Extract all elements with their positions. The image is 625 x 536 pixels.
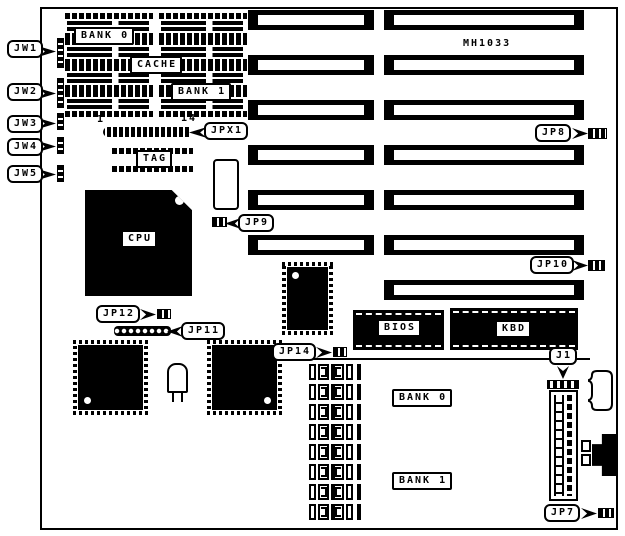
cache-bank0-label: BANK 0 — [74, 27, 134, 45]
simm-endbar — [357, 364, 361, 380]
simm-endcap — [346, 404, 353, 420]
j1-header — [547, 380, 579, 389]
expansion-slot — [384, 55, 584, 75]
jp12-jumper — [157, 309, 171, 319]
dip-chip — [157, 13, 247, 39]
jp10-jumper — [588, 260, 605, 271]
simm-latch-icon — [333, 364, 344, 380]
board-model-text: MH1033 — [463, 39, 511, 49]
expansion-slot — [248, 55, 374, 75]
simm-endcap — [346, 364, 353, 380]
jpx1-callout: JPX1 — [204, 122, 248, 140]
simm-endcap — [309, 444, 316, 460]
simm-endbar — [357, 384, 361, 400]
expansion-slot — [384, 100, 584, 120]
expansion-slot — [384, 145, 584, 165]
qfp-chip-small — [282, 262, 333, 335]
simm-latch-icon — [333, 444, 344, 460]
qfp-chip-left — [73, 340, 148, 415]
cache-bank1-label: BANK 1 — [171, 83, 231, 101]
pin1-dot-icon — [84, 397, 91, 404]
din-connector-outline — [585, 368, 616, 414]
simm-endcap — [309, 364, 316, 380]
simm-latch-icon — [318, 484, 329, 500]
jw3-callout: JW3 — [7, 115, 43, 133]
jw2-jumper — [57, 78, 64, 108]
simm-endcap — [346, 424, 353, 440]
simm-latch-icon — [318, 364, 329, 380]
kbd-label: KBD — [495, 320, 531, 338]
expansion-slot — [384, 190, 584, 210]
connector-pin-block — [581, 454, 591, 466]
expansion-slot — [384, 280, 584, 300]
simm-socket-stack — [309, 364, 361, 520]
jp12-callout: JP12 — [96, 305, 140, 323]
jw4-callout: JW4 — [7, 138, 43, 156]
jw3-jumper — [57, 113, 64, 130]
simm-endbar — [357, 484, 361, 500]
simm-socket — [309, 484, 361, 500]
oscillator — [213, 159, 239, 210]
qfp-chip-right — [207, 340, 282, 415]
connector-pin-block — [581, 440, 591, 452]
jpx1-header — [103, 127, 191, 137]
expansion-slot — [384, 235, 584, 255]
power-connector — [549, 390, 578, 501]
simm-socket — [309, 424, 361, 440]
bios-label: BIOS — [377, 319, 421, 337]
power-connector-stripe — [567, 395, 572, 496]
expansion-slot — [248, 190, 374, 210]
simm-latch-icon — [318, 424, 329, 440]
cpu-label: CPU — [121, 230, 157, 248]
jp11-callout: JP11 — [181, 322, 225, 340]
expansion-slot — [248, 10, 374, 30]
simm-endbar — [357, 504, 361, 520]
dip-chip — [63, 91, 153, 117]
simm-endcap — [309, 464, 316, 480]
simm-endcap — [309, 384, 316, 400]
simm-bank0-label: BANK 0 — [392, 389, 452, 407]
jp9-jumper — [212, 217, 227, 227]
power-connector-pins — [554, 395, 564, 496]
simm-socket — [309, 504, 361, 520]
simm-latch-icon — [333, 404, 344, 420]
simm-endcap — [309, 424, 316, 440]
jpx1-pin14-text: 14 — [181, 114, 197, 124]
jw5-callout: JW5 — [7, 165, 43, 183]
simm-socket — [309, 464, 361, 480]
simm-endbar — [357, 424, 361, 440]
simm-bank1-label: BANK 1 — [392, 472, 452, 490]
jw2-callout: JW2 — [7, 83, 43, 101]
pin1-dot-icon — [292, 272, 299, 279]
expansion-slot — [248, 100, 374, 120]
simm-latch-icon — [318, 404, 329, 420]
jp8-callout: JP8 — [535, 124, 571, 142]
simm-endcap — [346, 484, 353, 500]
jp11-header — [114, 326, 171, 336]
simm-endcap — [346, 464, 353, 480]
cache-label: CACHE — [130, 56, 182, 74]
jw5-jumper — [57, 165, 64, 182]
expansion-slot — [384, 10, 584, 30]
motherboard-diagram: MH1033 BANK 0 CACHE BANK 1 JW1 JW2 JW3 J… — [0, 0, 625, 536]
expansion-slot — [248, 235, 374, 255]
simm-endcap — [309, 484, 316, 500]
jp10-callout: JP10 — [530, 256, 574, 274]
simm-endcap — [309, 504, 316, 520]
jp7-callout: JP7 — [544, 504, 580, 522]
simm-endbar — [357, 404, 361, 420]
crystal — [167, 363, 188, 393]
simm-endbar — [357, 444, 361, 460]
jp14-callout: JP14 — [272, 343, 316, 361]
simm-latch-icon — [333, 424, 344, 440]
simm-endcap — [346, 504, 353, 520]
jp14-jumper — [333, 347, 347, 357]
jp9-callout: JP9 — [238, 214, 274, 232]
simm-socket — [309, 404, 361, 420]
j1-callout: J1 — [549, 347, 577, 365]
simm-endcap — [309, 404, 316, 420]
jp8-jumper — [588, 128, 607, 139]
jw1-jumper — [57, 38, 64, 68]
simm-latch-icon — [318, 444, 329, 460]
simm-latch-icon — [318, 504, 329, 520]
simm-endcap — [346, 384, 353, 400]
simm-latch-icon — [333, 384, 344, 400]
simm-latch-icon — [318, 384, 329, 400]
simm-endcap — [346, 444, 353, 460]
jw4-jumper — [57, 137, 64, 154]
simm-latch-icon — [333, 504, 344, 520]
simm-socket — [309, 364, 361, 380]
simm-latch-icon — [333, 464, 344, 480]
jpx1-pin1-text: 1 — [97, 115, 105, 125]
simm-endbar — [357, 464, 361, 480]
jp7-jumper — [598, 508, 614, 518]
simm-latch-icon — [333, 484, 344, 500]
simm-latch-icon — [318, 464, 329, 480]
jw1-callout: JW1 — [7, 40, 43, 58]
expansion-slot — [248, 145, 374, 165]
pin1-dot-icon — [264, 397, 271, 404]
tag-label: TAG — [136, 150, 172, 168]
simm-socket — [309, 384, 361, 400]
simm-socket — [309, 444, 361, 460]
